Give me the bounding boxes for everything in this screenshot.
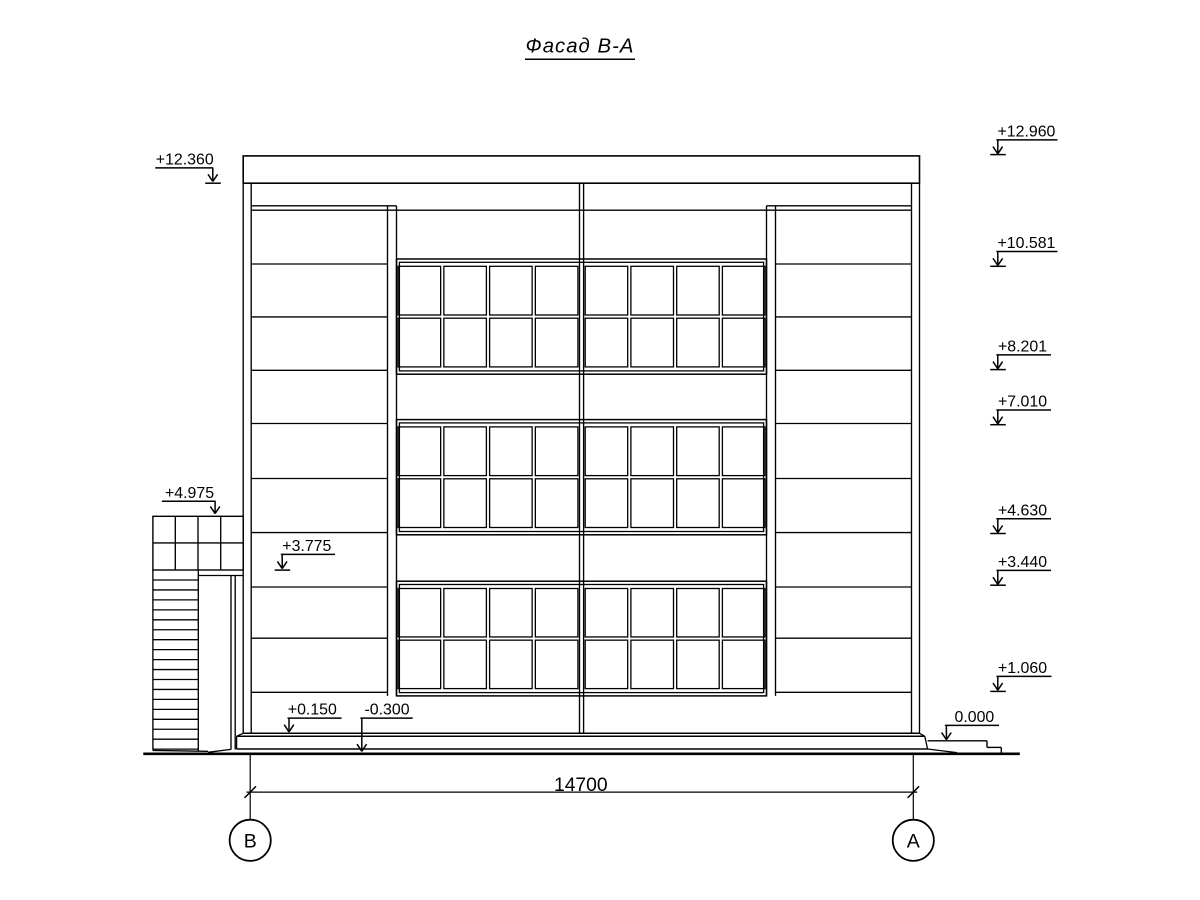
svg-text:+3.440: +3.440 bbox=[998, 554, 1047, 571]
svg-text:+8.201: +8.201 bbox=[998, 338, 1047, 355]
svg-text:+0.150: +0.150 bbox=[288, 702, 337, 719]
svg-text:+7.010: +7.010 bbox=[998, 394, 1047, 411]
svg-text:+4.630: +4.630 bbox=[998, 502, 1047, 519]
svg-text:Фасад В-А: Фасад В-А bbox=[526, 36, 635, 58]
svg-text:+12.360: +12.360 bbox=[156, 151, 214, 168]
svg-text:+3.775: +3.775 bbox=[282, 538, 331, 555]
svg-text:+10.581: +10.581 bbox=[998, 235, 1056, 252]
svg-text:14700: 14700 bbox=[554, 775, 608, 796]
svg-text:В: В bbox=[244, 830, 257, 852]
svg-text:А: А bbox=[907, 830, 920, 852]
svg-text:-0.300: -0.300 bbox=[365, 702, 410, 719]
svg-text:+12.960: +12.960 bbox=[998, 123, 1056, 140]
svg-text:+1.060: +1.060 bbox=[998, 660, 1047, 677]
svg-text:0.000: 0.000 bbox=[955, 709, 995, 726]
svg-text:+4.975: +4.975 bbox=[165, 485, 214, 502]
